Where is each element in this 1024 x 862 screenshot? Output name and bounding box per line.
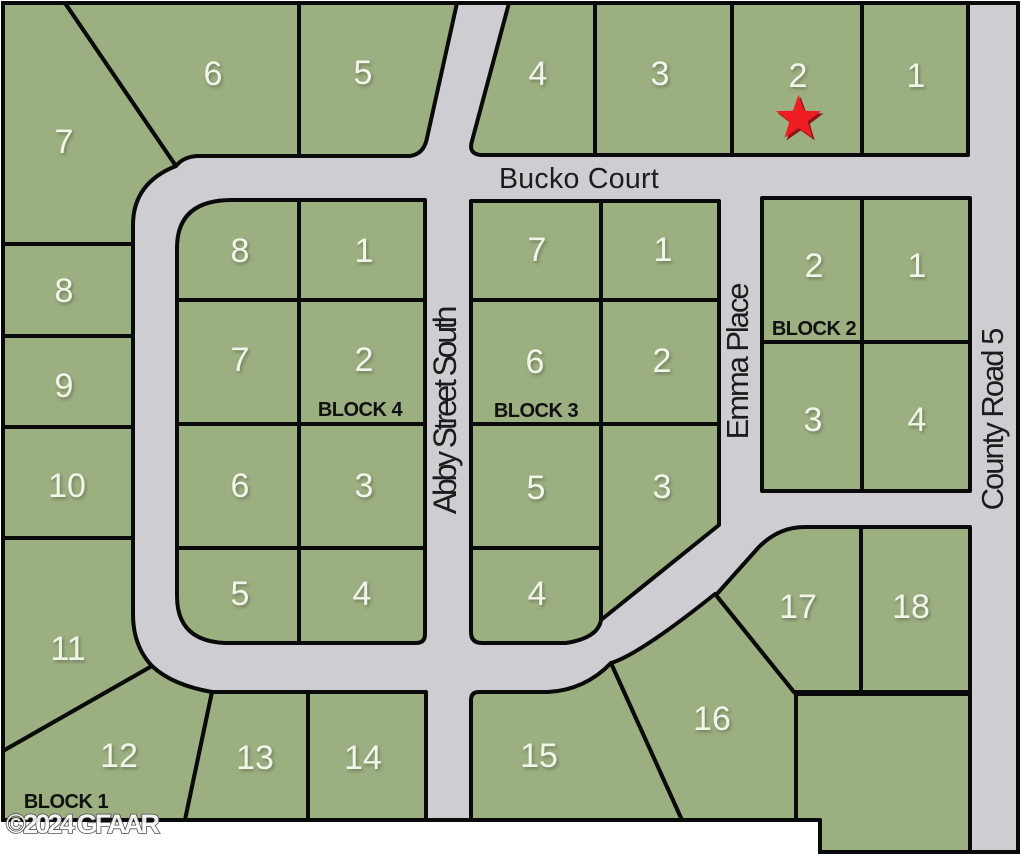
svg-text:1: 1 bbox=[654, 231, 673, 269]
svg-text:6: 6 bbox=[204, 55, 223, 93]
svg-text:5: 5 bbox=[231, 575, 250, 613]
svg-text:1: 1 bbox=[908, 247, 927, 285]
svg-text:3: 3 bbox=[804, 401, 823, 439]
svg-text:8: 8 bbox=[55, 272, 74, 310]
svg-text:10: 10 bbox=[48, 467, 86, 505]
svg-text:1: 1 bbox=[355, 232, 374, 270]
svg-text:1: 1 bbox=[907, 57, 926, 95]
svg-text:14: 14 bbox=[344, 739, 382, 777]
svg-text:3: 3 bbox=[651, 55, 670, 93]
svg-text:2: 2 bbox=[653, 342, 672, 380]
svg-text:4: 4 bbox=[529, 55, 548, 93]
svg-text:County Road 5: County Road 5 bbox=[975, 329, 1010, 511]
svg-text:16: 16 bbox=[693, 700, 731, 738]
svg-text:©2024 GFAAR: ©2024 GFAAR bbox=[6, 809, 159, 839]
svg-text:BLOCK 4: BLOCK 4 bbox=[318, 399, 404, 421]
svg-text:12: 12 bbox=[100, 737, 138, 775]
svg-text:5: 5 bbox=[527, 469, 546, 507]
svg-text:7: 7 bbox=[55, 123, 74, 161]
svg-text:Abby Street South: Abby Street South bbox=[427, 307, 463, 514]
svg-text:6: 6 bbox=[526, 343, 545, 381]
svg-text:18: 18 bbox=[892, 588, 930, 626]
svg-text:15: 15 bbox=[520, 737, 558, 775]
svg-text:BLOCK 2: BLOCK 2 bbox=[772, 318, 857, 340]
svg-text:7: 7 bbox=[528, 231, 547, 269]
svg-text:6: 6 bbox=[231, 467, 250, 505]
svg-text:2: 2 bbox=[805, 247, 824, 285]
svg-text:5: 5 bbox=[354, 54, 373, 92]
svg-text:3: 3 bbox=[653, 468, 672, 506]
svg-text:2: 2 bbox=[355, 341, 374, 379]
svg-text:4: 4 bbox=[353, 575, 372, 613]
svg-text:8: 8 bbox=[231, 232, 250, 270]
svg-text:3: 3 bbox=[355, 467, 374, 505]
svg-text:BLOCK 3: BLOCK 3 bbox=[494, 400, 579, 422]
svg-text:Emma Place: Emma Place bbox=[720, 284, 755, 440]
svg-text:Bucko Court: Bucko Court bbox=[499, 163, 659, 195]
svg-text:17: 17 bbox=[779, 588, 817, 626]
svg-text:2: 2 bbox=[789, 57, 808, 95]
svg-text:4: 4 bbox=[908, 401, 927, 439]
svg-text:11: 11 bbox=[50, 630, 85, 668]
svg-text:7: 7 bbox=[231, 341, 250, 379]
svg-text:9: 9 bbox=[55, 367, 74, 405]
svg-text:4: 4 bbox=[528, 575, 547, 613]
svg-text:13: 13 bbox=[236, 739, 274, 777]
